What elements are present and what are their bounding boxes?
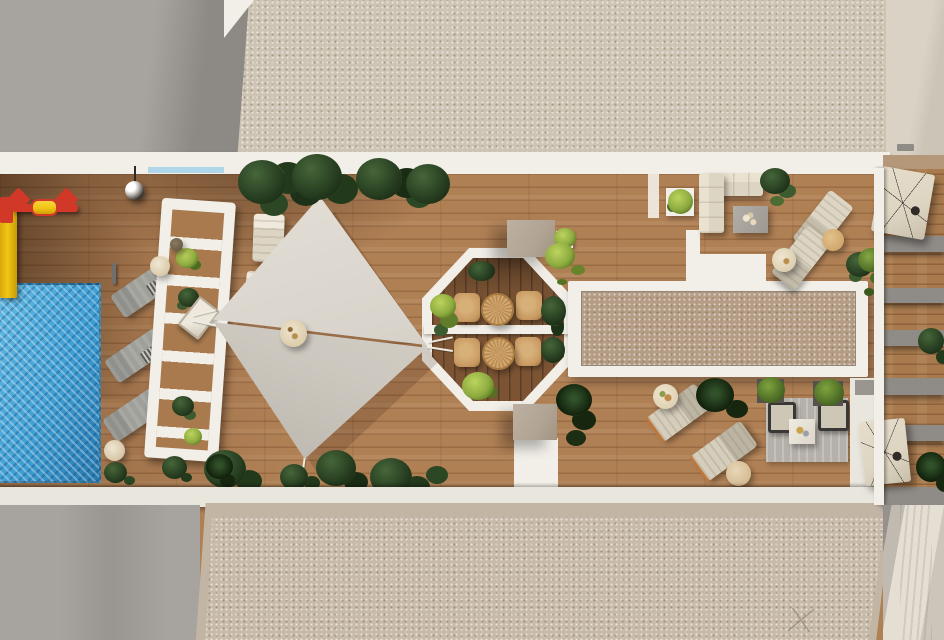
- planter-plant: [184, 428, 202, 445]
- balcony-plant: [918, 328, 944, 354]
- walkway-north-stub: [686, 230, 700, 290]
- terrace-boundary-wall: [874, 168, 884, 505]
- roof-drain-mark: [788, 608, 814, 632]
- planter-palm: [668, 189, 693, 214]
- swimming-pool: [0, 283, 101, 483]
- top-gravel-roof: [225, 0, 893, 153]
- pool-water-edge-sliver: [148, 167, 224, 173]
- balcony-divider-wall: [883, 487, 944, 505]
- pool-side-bush: [162, 456, 187, 479]
- coffee-table-white: [789, 419, 815, 444]
- side-table-round: [150, 256, 170, 276]
- rattan-table: [482, 337, 515, 370]
- pool-side-bush: [104, 462, 127, 483]
- top-left-gray-roof: [0, 0, 252, 156]
- wicker-chair: [454, 338, 480, 367]
- top-right-wall: [886, 0, 944, 156]
- step-pad: [855, 380, 875, 395]
- coffee-table-gray: [733, 206, 768, 233]
- rattan-table: [481, 293, 514, 326]
- playground-roller-drum: [31, 199, 58, 216]
- walkway-south: [514, 438, 558, 488]
- planter-plant: [176, 248, 198, 268]
- balcony-divider-wall: [883, 288, 944, 303]
- wicker-chair: [515, 337, 541, 366]
- rooftop-terrace-render: [0, 0, 944, 640]
- tropical-plant: [316, 450, 356, 486]
- octagon-bush: [462, 372, 494, 400]
- pool-side-palm: [206, 454, 233, 479]
- pouf-under-sails: [280, 320, 307, 347]
- octagon-cross-beam: [424, 325, 572, 334]
- palm-plant: [696, 378, 734, 412]
- planter-block-bottom: [513, 404, 557, 440]
- ball-lamp: [125, 181, 144, 200]
- tray-with-drinks: [170, 238, 183, 251]
- grass-plant: [545, 243, 575, 269]
- tropical-plant: [356, 158, 402, 200]
- side-table-cream: [772, 248, 796, 272]
- wicker-chair: [516, 291, 542, 320]
- octagon-bush: [430, 294, 456, 318]
- balcony-palm: [916, 452, 944, 482]
- cantilever-umbrella: [859, 418, 911, 486]
- tropical-plant: [406, 164, 450, 204]
- balcony-divider-wall: [883, 378, 944, 395]
- side-table-cream: [653, 384, 678, 409]
- wicker-chair: [454, 293, 480, 322]
- facade-stripe-texture: [900, 505, 932, 640]
- palm-plant: [556, 384, 592, 416]
- walkway-north: [699, 254, 766, 290]
- deck-divider: [648, 174, 659, 218]
- octagon-bush: [468, 261, 495, 281]
- planter-plant: [172, 396, 194, 416]
- sofa-side-segment: [699, 173, 724, 233]
- tropical-plant: [292, 154, 342, 200]
- sofa-corner-bush: [760, 168, 790, 194]
- bottom-left-gray-roof: [0, 505, 200, 640]
- side-table-tan: [822, 229, 844, 251]
- bottom-gravel-roof: [204, 517, 886, 640]
- octagon-bush: [541, 337, 565, 363]
- octagon-bush: [541, 296, 566, 326]
- planter-bush: [757, 377, 785, 403]
- top-right-wall-vent: [897, 144, 914, 151]
- skylight-gravel: [581, 291, 856, 366]
- planter-bush: [814, 379, 844, 406]
- side-table-tan: [726, 461, 751, 486]
- tropical-plant: [238, 160, 286, 204]
- pool-ladder-rail: [112, 263, 116, 284]
- side-table-round: [104, 440, 125, 461]
